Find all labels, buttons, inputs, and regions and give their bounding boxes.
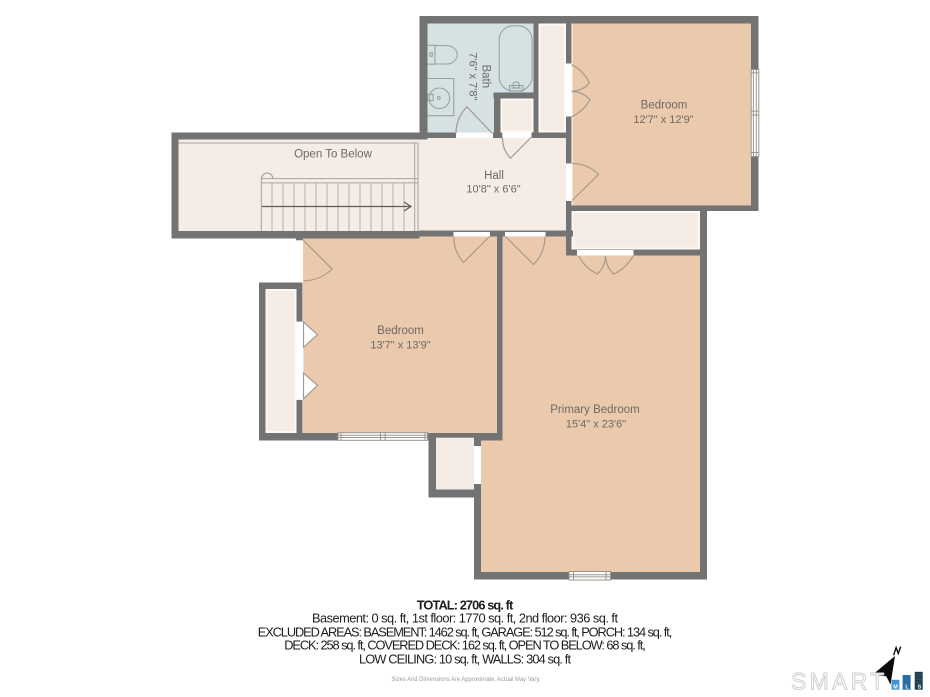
svg-text:13'7" x 13'9": 13'7" x 13'9" xyxy=(370,339,430,351)
svg-text:Primary Bedroom: Primary Bedroom xyxy=(550,404,639,416)
svg-text:S: S xyxy=(918,685,922,691)
svg-text:SMART: SMART xyxy=(791,669,888,696)
svg-text:10'8" x 6'6": 10'8" x 6'6" xyxy=(466,183,520,195)
svg-text:LOW CEILING: 10 sq. ft, WALLS:: LOW CEILING: 10 sq. ft, WALLS: 304 sq. f… xyxy=(359,651,571,666)
svg-text:Basement: 0 sq. ft, 1st floor:: Basement: 0 sq. ft, 1st floor: 1770 sq. … xyxy=(312,611,618,626)
svg-text:7'6" x 7'8": 7'6" x 7'8" xyxy=(467,52,479,100)
svg-text:15'4" x 23'6": 15'4" x 23'6" xyxy=(566,418,626,430)
svg-text:Sizes And Dimensions Are Appro: Sizes And Dimensions Are Approximate, Ac… xyxy=(392,676,541,683)
svg-text:M: M xyxy=(893,685,898,691)
svg-text:12'7" x 12'9": 12'7" x 12'9" xyxy=(633,114,693,126)
svg-text:DECK: 258 sq. ft, COVERED DECK: DECK: 258 sq. ft, COVERED DECK: 162 sq. … xyxy=(284,638,646,653)
svg-text:Bedroom: Bedroom xyxy=(641,100,688,112)
svg-text:Bedroom: Bedroom xyxy=(377,325,424,337)
svg-text:Hall: Hall xyxy=(484,170,504,182)
svg-text:Bath: Bath xyxy=(480,64,492,88)
svg-text:Open To Below: Open To Below xyxy=(294,148,372,160)
